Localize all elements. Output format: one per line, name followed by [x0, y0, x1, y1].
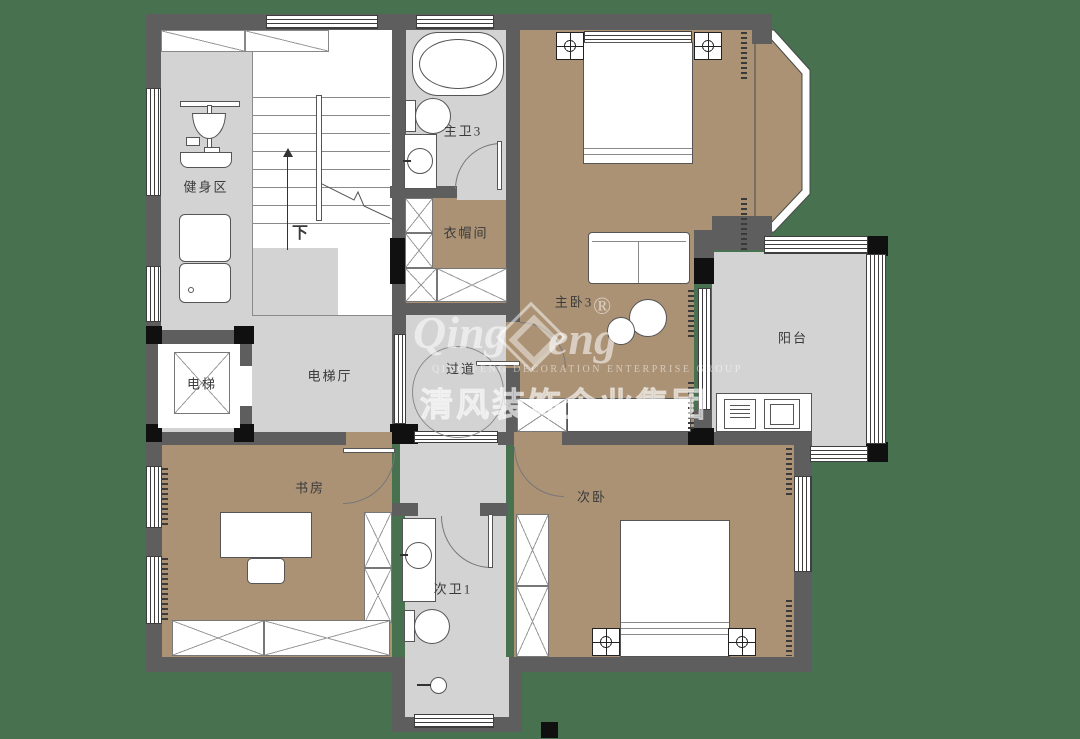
column-elevator-ne — [234, 326, 254, 344]
wall-bottom-right — [522, 657, 812, 672]
cloakroom-wardrobe-cell — [405, 198, 433, 233]
shower-arm — [417, 684, 431, 686]
watermark-registered-icon: ® — [593, 294, 611, 321]
curtain-symbol — [162, 468, 168, 528]
curtain-symbol — [741, 32, 747, 82]
watermark-chinese-line: 清风装饰企业集团 — [420, 378, 708, 426]
floor-plan: Qing eng ® QING FENG DECORATION ENTERPRI… — [0, 0, 1080, 739]
curtain-symbol — [786, 448, 792, 496]
toilet-bowl-second — [414, 609, 450, 644]
curtain-symbol — [162, 558, 168, 622]
curtain-symbol — [741, 198, 747, 252]
window-left-gym-1 — [146, 88, 161, 196]
bay-window — [748, 10, 820, 242]
room-label-elevator: 电梯 — [187, 374, 217, 393]
floor-shower-annex — [405, 657, 509, 717]
cloakroom-wardrobe-cell — [405, 268, 437, 302]
room-label-balcony: 阳台 — [778, 328, 808, 347]
window-balcony-top — [764, 236, 868, 254]
window-left-study-1 — [146, 466, 162, 528]
wall-second-bath-top-left — [392, 503, 418, 516]
room-label-master-bath: 主卫3 — [444, 121, 483, 140]
sofa-back-line — [592, 241, 686, 242]
bed-second-line — [621, 628, 729, 629]
bed-master-line — [584, 154, 692, 155]
bed-second-line — [621, 622, 729, 623]
stair-landing — [252, 248, 338, 316]
nightstand-lamp-icon — [556, 32, 584, 60]
room-label-second-bedroom: 次卧 — [577, 487, 607, 506]
room-label-gym: 健身区 — [183, 177, 228, 196]
wall-elevator-left — [146, 332, 158, 430]
gym-equipment-base — [180, 152, 232, 168]
column-elevator-nw — [146, 326, 162, 344]
bed-master-line — [584, 148, 692, 149]
watermark-latin-line: QING FENG DECORATION ENTERPRISE GROUP — [432, 364, 743, 375]
wall-balcony-left-stub-top — [694, 230, 714, 260]
bed-master — [583, 42, 693, 164]
wall-bottom-left — [146, 657, 392, 672]
desk-chair — [247, 558, 285, 584]
cloakroom-wardrobe-cell — [405, 233, 433, 268]
study-cabinet-cell — [364, 512, 392, 568]
basin-spout-second — [400, 554, 408, 556]
window-left-gym-2 — [146, 266, 161, 322]
elevator-door-opening — [240, 366, 252, 406]
gym-equipment-weight — [186, 137, 200, 146]
column-balcony-se — [866, 442, 888, 462]
nightstand-lamp-icon — [592, 628, 620, 656]
window-left-study-2 — [146, 556, 162, 624]
window-balcony-right — [866, 254, 886, 444]
wall-corridor-right-upper — [506, 196, 520, 322]
wall-top-bay-stub — [752, 14, 772, 44]
room-label-corridor: 过道 — [446, 359, 476, 378]
room-label-study: 书房 — [295, 478, 325, 497]
nightstand-lamp-icon — [694, 32, 722, 60]
nightstand-lamp-icon — [728, 628, 756, 656]
sliding-door-hall-corridor — [394, 334, 406, 424]
cloakroom-wardrobe-cell — [437, 268, 507, 302]
room-label-second-bath: 次卫1 — [434, 579, 473, 598]
sofa-divider — [638, 241, 639, 283]
bed-second-line — [621, 634, 729, 635]
column-master-balcony — [694, 258, 714, 284]
column-balcony-junction — [688, 428, 714, 445]
column-balcony-ne — [866, 236, 888, 256]
laundry-sink-basin — [770, 404, 794, 425]
stair-direction-arrow — [287, 156, 288, 250]
stair-break-line — [322, 180, 396, 226]
watermark-script-left: Qing — [413, 306, 508, 359]
study-wardrobe-cell — [172, 620, 264, 656]
window-bedroom2-right — [794, 476, 812, 572]
basin-spout-master — [403, 160, 411, 162]
stairs-down-label: 下 — [292, 219, 310, 243]
window-balcony-bottom — [810, 446, 868, 462]
wall-balcony-counter-bottom — [660, 432, 812, 445]
stair-hall-divider — [252, 315, 392, 316]
stair-arrowhead — [283, 148, 293, 157]
study-wardrobe-cell — [264, 620, 390, 656]
bedroom2-wardrobe-cell — [516, 586, 549, 657]
window-top-stairwell — [266, 15, 378, 29]
study-cabinet-cell — [364, 568, 392, 623]
gym-stair-divider — [252, 30, 253, 316]
wall-second-bath-top-right — [480, 503, 508, 516]
door-leaf-master-bath — [497, 141, 502, 190]
desk — [220, 512, 312, 558]
gym-bench-knob — [188, 287, 194, 293]
gym-cabinet-cell — [245, 30, 329, 52]
column-annex-se — [541, 722, 558, 738]
wall-bedroom2-top-left — [498, 432, 514, 445]
room-label-elevator-hall: 电梯厅 — [307, 366, 352, 385]
gym-bench-upper — [179, 214, 231, 262]
opening-second-bath — [418, 503, 480, 516]
shower-head-icon — [430, 677, 447, 694]
door-leaf-second-bath — [488, 514, 493, 568]
gym-cabinet-cell — [161, 30, 245, 52]
door-leaf-study — [343, 448, 395, 453]
curtain-symbol — [688, 290, 694, 338]
wall-master-bath-right — [506, 28, 520, 196]
basin-second — [405, 542, 432, 569]
opening-study — [346, 432, 392, 445]
sofa-master — [588, 232, 690, 284]
bed-second — [620, 520, 730, 657]
window-annex-bottom — [414, 714, 494, 728]
bathtub-inner — [419, 39, 497, 89]
room-label-cloakroom: 衣帽间 — [443, 223, 488, 242]
window-top-master-bath — [416, 15, 494, 29]
gym-bench-lower — [179, 263, 231, 303]
opening-bedroom2 — [514, 432, 562, 445]
washing-machine-vents — [730, 405, 750, 418]
curtain-symbol — [786, 600, 792, 656]
room-label-master-bedroom: 主卧3 — [555, 292, 594, 311]
bedroom2-wardrobe-cell — [516, 514, 549, 586]
